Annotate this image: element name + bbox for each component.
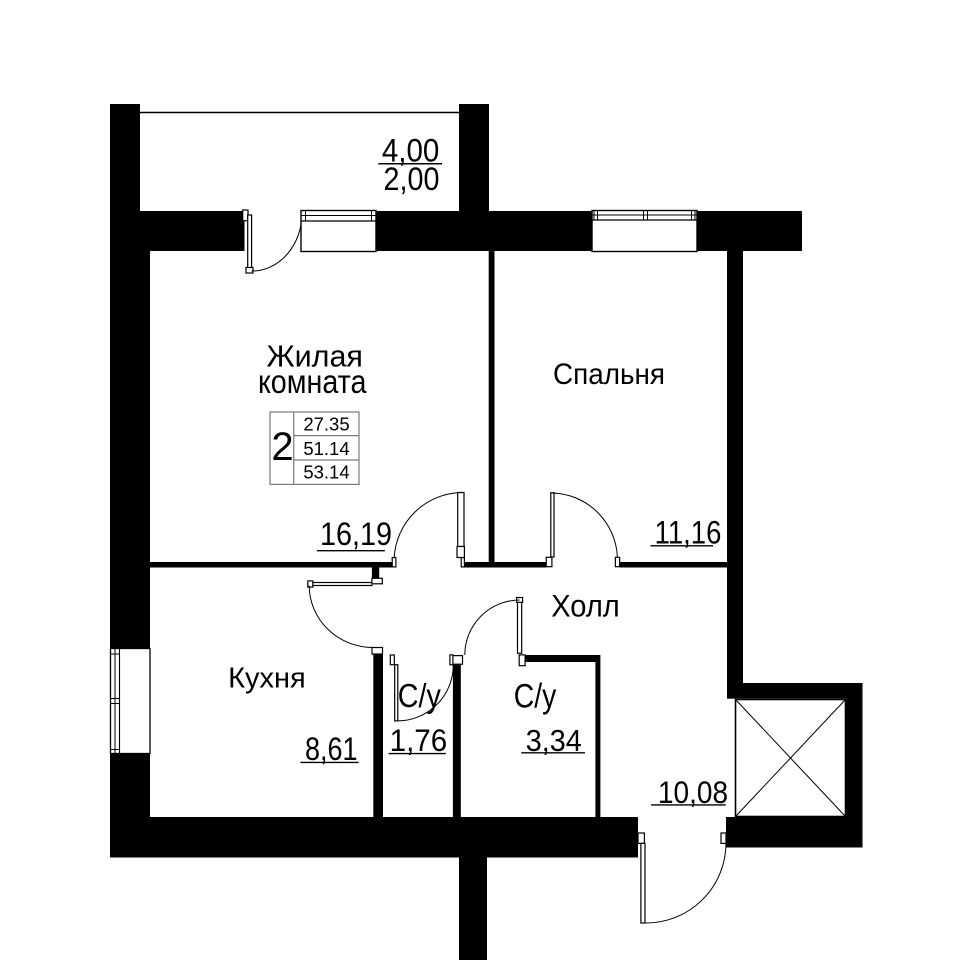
svg-text:комната: комната	[258, 363, 367, 400]
svg-text:2: 2	[271, 425, 293, 469]
svg-text:Кухня: Кухня	[228, 663, 306, 695]
svg-text:16,19: 16,19	[320, 516, 392, 552]
svg-text:53.14: 53.14	[303, 462, 349, 483]
svg-text:С/у: С/у	[514, 678, 557, 716]
svg-text:51.14: 51.14	[303, 438, 349, 459]
svg-text:1,76: 1,76	[390, 722, 448, 758]
svg-text:Холл: Холл	[551, 588, 620, 624]
svg-text:С/у: С/у	[398, 677, 441, 714]
svg-text:8,61: 8,61	[305, 731, 358, 767]
svg-text:2,00: 2,00	[384, 161, 440, 197]
svg-text:27.35: 27.35	[303, 414, 349, 435]
svg-text:Спальня: Спальня	[553, 358, 665, 391]
